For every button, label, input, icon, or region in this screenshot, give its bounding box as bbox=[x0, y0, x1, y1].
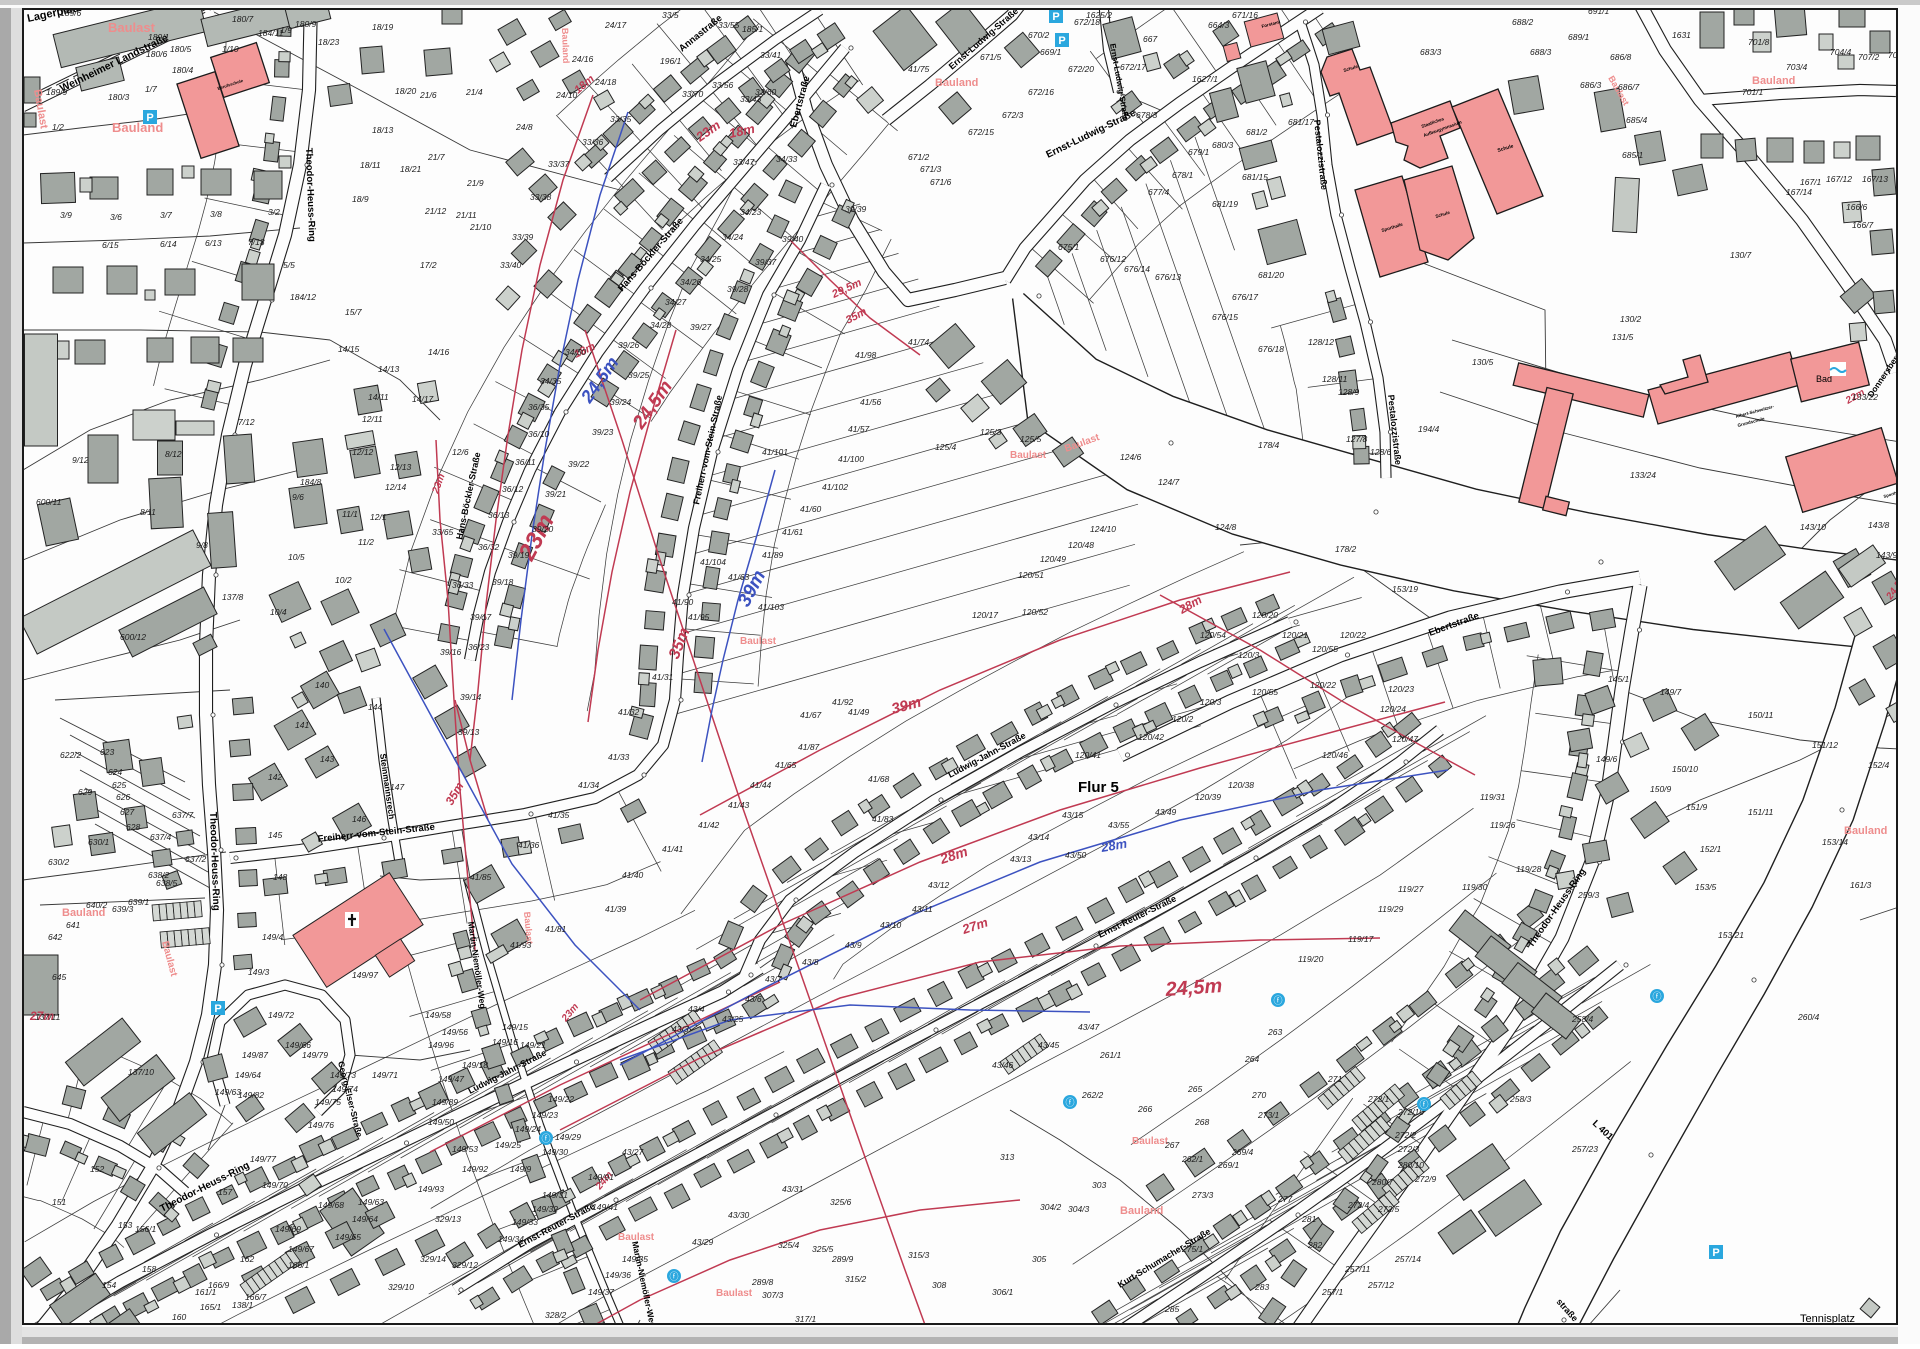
svg-text:41/102: 41/102 bbox=[822, 482, 848, 492]
svg-text:14/11: 14/11 bbox=[368, 392, 389, 402]
svg-text:149/50: 149/50 bbox=[428, 1117, 454, 1127]
svg-text:625: 625 bbox=[112, 780, 126, 790]
svg-text:637/7: 637/7 bbox=[172, 810, 194, 820]
svg-text:41/74: 41/74 bbox=[908, 337, 930, 347]
svg-text:41/44: 41/44 bbox=[750, 780, 772, 790]
svg-text:180/6: 180/6 bbox=[146, 49, 168, 59]
svg-text:119/30: 119/30 bbox=[1462, 882, 1488, 892]
svg-text:119/31: 119/31 bbox=[1480, 792, 1506, 802]
svg-text:153: 153 bbox=[118, 1220, 132, 1230]
svg-text:701/1: 701/1 bbox=[1742, 87, 1764, 97]
svg-text:120/46: 120/46 bbox=[1322, 750, 1348, 760]
svg-text:149/74: 149/74 bbox=[332, 1084, 358, 1094]
svg-text:Baulast: Baulast bbox=[1132, 1136, 1169, 1147]
svg-text:149/72: 149/72 bbox=[268, 1010, 294, 1020]
svg-text:41/68: 41/68 bbox=[868, 774, 890, 784]
svg-text:686/8: 686/8 bbox=[1610, 52, 1632, 62]
svg-text:672/3: 672/3 bbox=[1002, 110, 1024, 120]
svg-text:167/1: 167/1 bbox=[1800, 177, 1822, 187]
svg-text:683/3: 683/3 bbox=[1420, 47, 1442, 57]
svg-text:149/9: 149/9 bbox=[510, 1164, 532, 1174]
svg-text:41/85: 41/85 bbox=[470, 872, 492, 882]
svg-text:12/14: 12/14 bbox=[385, 482, 407, 492]
svg-text:149/29: 149/29 bbox=[555, 1132, 581, 1142]
svg-text:149/33: 149/33 bbox=[512, 1217, 538, 1227]
svg-text:257/14: 257/14 bbox=[1394, 1254, 1421, 1264]
svg-text:259/3: 259/3 bbox=[1577, 890, 1600, 900]
svg-text:151/9: 151/9 bbox=[1686, 802, 1708, 812]
svg-text:289/9: 289/9 bbox=[831, 1254, 854, 1264]
svg-text:33/43: 33/43 bbox=[740, 94, 762, 104]
svg-text:41/60: 41/60 bbox=[800, 504, 822, 514]
svg-text:34/28: 34/28 bbox=[650, 320, 672, 330]
svg-text:640/2: 640/2 bbox=[86, 900, 108, 910]
svg-text:39/13: 39/13 bbox=[458, 727, 480, 737]
svg-text:149/91: 149/91 bbox=[588, 1172, 614, 1182]
svg-text:1627/1: 1627/1 bbox=[1192, 74, 1218, 84]
svg-text:671/6: 671/6 bbox=[930, 177, 952, 187]
svg-text:149/37: 149/37 bbox=[588, 1287, 614, 1297]
svg-text:3/9: 3/9 bbox=[60, 210, 72, 220]
svg-text:33/41: 33/41 bbox=[760, 50, 782, 60]
svg-text:626: 626 bbox=[116, 792, 130, 802]
svg-text:41/31: 41/31 bbox=[652, 672, 674, 682]
svg-text:686/7: 686/7 bbox=[1618, 82, 1640, 92]
svg-text:149/89: 149/89 bbox=[432, 1097, 458, 1107]
svg-text:120/55: 120/55 bbox=[1252, 687, 1278, 697]
svg-text:282: 282 bbox=[1307, 1240, 1322, 1250]
svg-text:149/16: 149/16 bbox=[492, 1037, 518, 1047]
svg-text:120/55: 120/55 bbox=[1312, 644, 1338, 654]
svg-text:10/4: 10/4 bbox=[270, 607, 287, 617]
svg-text:41/95: 41/95 bbox=[688, 612, 710, 622]
svg-text:676/12: 676/12 bbox=[1100, 254, 1126, 264]
svg-text:33/47: 33/47 bbox=[733, 157, 755, 167]
svg-text:119/26: 119/26 bbox=[1490, 820, 1516, 830]
svg-text:680/3: 680/3 bbox=[1212, 140, 1234, 150]
svg-text:676/15: 676/15 bbox=[1212, 312, 1238, 322]
svg-text:260/4: 260/4 bbox=[1797, 1012, 1820, 1022]
svg-text:21/7: 21/7 bbox=[427, 152, 445, 162]
svg-text:149/58: 149/58 bbox=[425, 1010, 451, 1020]
svg-text:149/53: 149/53 bbox=[452, 1144, 478, 1154]
svg-text:166/7: 166/7 bbox=[245, 1292, 267, 1302]
svg-text:43/27: 43/27 bbox=[622, 1147, 644, 1157]
svg-text:158: 158 bbox=[142, 1264, 156, 1274]
svg-text:140: 140 bbox=[315, 680, 329, 690]
svg-text:149/6: 149/6 bbox=[1596, 754, 1618, 764]
svg-text:151/11: 151/11 bbox=[1748, 807, 1774, 817]
svg-text:41/87: 41/87 bbox=[798, 742, 820, 752]
svg-text:119/20: 119/20 bbox=[1298, 954, 1324, 964]
svg-text:143/10: 143/10 bbox=[1800, 522, 1826, 532]
svg-text:688/2: 688/2 bbox=[1512, 17, 1534, 27]
svg-text:257/11: 257/11 bbox=[1344, 1264, 1371, 1274]
svg-text:34/33: 34/33 bbox=[776, 154, 798, 164]
svg-text:670/2: 670/2 bbox=[1028, 30, 1050, 40]
svg-text:303: 303 bbox=[1092, 1180, 1106, 1190]
svg-text:669/1: 669/1 bbox=[1040, 47, 1062, 57]
svg-text:36/32: 36/32 bbox=[478, 542, 500, 552]
svg-text:43/25: 43/25 bbox=[722, 1014, 744, 1024]
svg-text:325/5: 325/5 bbox=[812, 1244, 834, 1254]
svg-text:24/16: 24/16 bbox=[571, 54, 594, 64]
svg-text:1/2: 1/2 bbox=[52, 122, 64, 132]
svg-text:130/2: 130/2 bbox=[1620, 314, 1642, 324]
svg-text:119/29: 119/29 bbox=[1378, 904, 1404, 914]
svg-text:1/7: 1/7 bbox=[145, 84, 157, 94]
svg-text:39/26: 39/26 bbox=[618, 340, 640, 350]
svg-text:120/49: 120/49 bbox=[1040, 554, 1066, 564]
svg-text:149/25: 149/25 bbox=[495, 1140, 521, 1150]
svg-text:671/2: 671/2 bbox=[908, 152, 930, 162]
svg-text:ⓕ: ⓕ bbox=[1419, 1100, 1428, 1110]
svg-text:120/47: 120/47 bbox=[1392, 734, 1418, 744]
svg-text:153/19: 153/19 bbox=[1392, 584, 1418, 594]
svg-text:43/50: 43/50 bbox=[1065, 850, 1087, 860]
svg-text:153/21: 153/21 bbox=[1718, 930, 1744, 940]
svg-text:189/9: 189/9 bbox=[46, 87, 68, 97]
svg-text:130/7: 130/7 bbox=[1730, 250, 1752, 260]
svg-text:269/1: 269/1 bbox=[1217, 1160, 1240, 1170]
svg-text:686/3: 686/3 bbox=[1580, 80, 1602, 90]
svg-text:41/33: 41/33 bbox=[608, 752, 630, 762]
svg-text:41/83: 41/83 bbox=[872, 814, 894, 824]
svg-text:36/33: 36/33 bbox=[452, 580, 474, 590]
svg-text:12/12: 12/12 bbox=[352, 447, 374, 457]
svg-text:676/14: 676/14 bbox=[1124, 264, 1150, 274]
svg-text:150/10: 150/10 bbox=[1672, 764, 1698, 774]
svg-text:41/41: 41/41 bbox=[662, 844, 684, 854]
svg-text:149/63: 149/63 bbox=[358, 1197, 384, 1207]
svg-text:265: 265 bbox=[1187, 1084, 1202, 1094]
svg-text:701/8: 701/8 bbox=[1748, 37, 1770, 47]
svg-text:258/3: 258/3 bbox=[1509, 1094, 1532, 1104]
svg-text:271: 271 bbox=[1327, 1074, 1342, 1084]
svg-text:43/49: 43/49 bbox=[1155, 807, 1177, 817]
svg-text:43/55: 43/55 bbox=[1108, 820, 1130, 830]
svg-text:166/7: 166/7 bbox=[1852, 220, 1874, 230]
svg-text:11/2: 11/2 bbox=[358, 537, 374, 547]
svg-text:41/49: 41/49 bbox=[848, 707, 870, 717]
svg-text:5/5: 5/5 bbox=[283, 260, 295, 270]
svg-text:43/31: 43/31 bbox=[782, 1184, 804, 1194]
svg-text:120/48: 120/48 bbox=[1068, 540, 1094, 550]
svg-text:14/17: 14/17 bbox=[412, 394, 434, 404]
svg-text:120/51: 120/51 bbox=[1018, 570, 1044, 580]
svg-text:39/22: 39/22 bbox=[568, 459, 590, 469]
svg-text:P: P bbox=[1052, 11, 1059, 23]
svg-text:11/1: 11/1 bbox=[342, 509, 358, 519]
svg-text:628: 628 bbox=[126, 822, 140, 832]
svg-text:149/77: 149/77 bbox=[250, 1154, 276, 1164]
svg-text:166/1: 166/1 bbox=[288, 1260, 310, 1270]
svg-text:1631: 1631 bbox=[1672, 30, 1691, 40]
svg-text:685/1: 685/1 bbox=[1622, 150, 1644, 160]
svg-text:149/67: 149/67 bbox=[288, 1244, 314, 1254]
svg-text:18/11: 18/11 bbox=[360, 160, 381, 170]
svg-text:ⓕ: ⓕ bbox=[541, 1134, 550, 1144]
svg-text:33/65: 33/65 bbox=[432, 527, 454, 537]
svg-text:149/93: 149/93 bbox=[418, 1184, 444, 1194]
svg-text:273/1: 273/1 bbox=[1257, 1110, 1280, 1120]
svg-text:149/18: 149/18 bbox=[462, 1060, 488, 1070]
svg-text:24/8: 24/8 bbox=[515, 122, 533, 132]
svg-text:285: 285 bbox=[1164, 1304, 1179, 1314]
svg-text:675/1: 675/1 bbox=[1058, 242, 1080, 252]
svg-text:157: 157 bbox=[218, 1187, 232, 1197]
svg-text:149/65: 149/65 bbox=[335, 1232, 361, 1242]
svg-text:149/73: 149/73 bbox=[330, 1070, 356, 1080]
svg-text:671/16: 671/16 bbox=[1232, 10, 1258, 20]
svg-text:707/2: 707/2 bbox=[1858, 52, 1880, 62]
svg-text:137/10: 137/10 bbox=[128, 1067, 154, 1077]
svg-text:41/67: 41/67 bbox=[800, 710, 822, 720]
svg-text:167/12: 167/12 bbox=[1826, 174, 1852, 184]
svg-text:120/17: 120/17 bbox=[972, 610, 998, 620]
svg-text:39/14: 39/14 bbox=[460, 692, 482, 702]
svg-text:ⓕ: ⓕ bbox=[669, 1272, 678, 1282]
svg-text:149/64: 149/64 bbox=[352, 1214, 378, 1224]
svg-text:41/40: 41/40 bbox=[622, 870, 644, 880]
svg-text:Bauland: Bauland bbox=[1120, 1205, 1163, 1217]
svg-text:624: 624 bbox=[108, 767, 122, 777]
svg-text:33/40: 33/40 bbox=[500, 260, 522, 270]
svg-text:637/2: 637/2 bbox=[185, 854, 207, 864]
svg-text:704/4: 704/4 bbox=[1830, 47, 1852, 57]
svg-text:180/4: 180/4 bbox=[172, 65, 194, 75]
svg-text:43/6: 43/6 bbox=[745, 994, 762, 1004]
svg-text:124/10: 124/10 bbox=[1090, 524, 1116, 534]
svg-text:36/13: 36/13 bbox=[488, 510, 510, 520]
svg-text:120/21: 120/21 bbox=[1282, 630, 1308, 640]
svg-text:153/5: 153/5 bbox=[1695, 882, 1717, 892]
svg-text:149/30: 149/30 bbox=[542, 1147, 568, 1157]
svg-text:600/12: 600/12 bbox=[120, 632, 146, 642]
svg-text:185/1: 185/1 bbox=[742, 24, 764, 34]
svg-text:34/35: 34/35 bbox=[540, 376, 562, 386]
svg-text:128/6: 128/6 bbox=[1370, 447, 1392, 457]
svg-text:41/104: 41/104 bbox=[700, 557, 726, 567]
svg-text:261/1: 261/1 bbox=[1099, 1050, 1122, 1060]
svg-text:317/1: 317/1 bbox=[795, 1314, 817, 1324]
svg-text:703/4: 703/4 bbox=[1786, 62, 1808, 72]
svg-text:151/12: 151/12 bbox=[1812, 740, 1838, 750]
svg-text:21/9: 21/9 bbox=[466, 178, 484, 188]
svg-text:39/17: 39/17 bbox=[470, 612, 492, 622]
svg-text:120/22: 120/22 bbox=[1310, 680, 1336, 690]
svg-text:6/15: 6/15 bbox=[102, 240, 119, 250]
svg-text:283: 283 bbox=[1254, 1282, 1269, 1292]
svg-text:41/103: 41/103 bbox=[758, 602, 784, 612]
svg-text:149/56: 149/56 bbox=[442, 1027, 468, 1037]
svg-text:ⓕ: ⓕ bbox=[1652, 992, 1661, 1002]
svg-text:21/12: 21/12 bbox=[424, 206, 447, 216]
svg-text:329/14: 329/14 bbox=[420, 1254, 446, 1264]
svg-text:6/14: 6/14 bbox=[160, 239, 177, 249]
svg-text:P: P bbox=[1712, 1247, 1719, 1259]
svg-text:128/12: 128/12 bbox=[1308, 337, 1334, 347]
svg-text:678/1: 678/1 bbox=[1172, 170, 1194, 180]
svg-text:325/4: 325/4 bbox=[778, 1240, 800, 1250]
svg-text:623: 623 bbox=[100, 747, 114, 757]
svg-text:180/9: 180/9 bbox=[295, 19, 317, 29]
svg-text:43/15: 43/15 bbox=[1062, 810, 1084, 820]
svg-text:263: 263 bbox=[1267, 1027, 1282, 1037]
svg-text:120/52: 120/52 bbox=[1022, 607, 1048, 617]
svg-text:17/2: 17/2 bbox=[420, 260, 437, 270]
svg-text:166/9: 166/9 bbox=[208, 1280, 230, 1290]
svg-text:41/98: 41/98 bbox=[855, 350, 877, 360]
svg-text:600/11: 600/11 bbox=[36, 497, 62, 507]
svg-text:41/92: 41/92 bbox=[832, 697, 854, 707]
svg-text:133/24: 133/24 bbox=[1630, 470, 1656, 480]
svg-text:36/10: 36/10 bbox=[528, 429, 550, 439]
svg-text:41/35: 41/35 bbox=[548, 810, 570, 820]
svg-text:149/15: 149/15 bbox=[502, 1022, 528, 1032]
svg-text:39/23: 39/23 bbox=[592, 427, 614, 437]
svg-text:149/47: 149/47 bbox=[438, 1074, 464, 1084]
svg-text:120/20: 120/20 bbox=[1252, 610, 1278, 620]
svg-text:689/1: 689/1 bbox=[1568, 32, 1590, 42]
svg-text:7/12: 7/12 bbox=[238, 417, 255, 427]
svg-text:137/8: 137/8 bbox=[222, 592, 244, 602]
svg-text:178/2: 178/2 bbox=[1335, 544, 1357, 554]
svg-text:672/15: 672/15 bbox=[968, 127, 994, 137]
svg-text:272/3: 272/3 bbox=[1397, 1144, 1420, 1154]
svg-text:120/38: 120/38 bbox=[1228, 780, 1254, 790]
svg-text:153/14: 153/14 bbox=[1822, 837, 1848, 847]
svg-text:667: 667 bbox=[1143, 34, 1157, 44]
svg-text:21/6: 21/6 bbox=[419, 90, 437, 100]
svg-text:8/12: 8/12 bbox=[165, 449, 182, 459]
svg-text:12/1: 12/1 bbox=[370, 512, 387, 522]
svg-text:149/68: 149/68 bbox=[318, 1200, 344, 1210]
svg-text:24,5m: 24,5m bbox=[1164, 975, 1223, 1001]
svg-text:128/11: 128/11 bbox=[1322, 374, 1348, 384]
svg-text:281: 281 bbox=[1301, 1214, 1316, 1224]
svg-text:273/3: 273/3 bbox=[1191, 1190, 1214, 1200]
svg-text:39/18: 39/18 bbox=[492, 577, 514, 587]
svg-text:10/2: 10/2 bbox=[335, 575, 352, 585]
svg-text:149/32: 149/32 bbox=[532, 1204, 558, 1214]
svg-text:289/8: 289/8 bbox=[751, 1277, 774, 1287]
svg-text:6/13: 6/13 bbox=[205, 238, 222, 248]
svg-text:180/5: 180/5 bbox=[170, 44, 192, 54]
svg-text:329/12: 329/12 bbox=[452, 1260, 478, 1270]
svg-text:9/8: 9/8 bbox=[196, 540, 208, 550]
svg-text:149/87: 149/87 bbox=[242, 1050, 268, 1060]
svg-text:637/4: 637/4 bbox=[150, 832, 172, 842]
svg-text:3/6: 3/6 bbox=[110, 212, 122, 222]
svg-text:124/8: 124/8 bbox=[1215, 522, 1237, 532]
svg-text:676/13: 676/13 bbox=[1155, 272, 1181, 282]
svg-text:151: 151 bbox=[52, 1197, 66, 1207]
svg-text:125/5: 125/5 bbox=[1020, 434, 1042, 444]
svg-text:672/20: 672/20 bbox=[1068, 64, 1094, 74]
svg-text:304/2: 304/2 bbox=[1040, 1202, 1062, 1212]
svg-text:149/31: 149/31 bbox=[542, 1190, 568, 1200]
svg-text:672/17: 672/17 bbox=[1120, 62, 1146, 72]
svg-text:124/7: 124/7 bbox=[1158, 477, 1180, 487]
svg-text:Baulast: Baulast bbox=[618, 1232, 655, 1243]
svg-text:149/23: 149/23 bbox=[532, 1110, 558, 1120]
svg-text:313: 313 bbox=[1000, 1152, 1014, 1162]
svg-text:41/75: 41/75 bbox=[908, 64, 930, 74]
svg-text:41/36: 41/36 bbox=[518, 840, 540, 850]
svg-text:Bauland: Bauland bbox=[1844, 825, 1887, 837]
svg-text:36/35: 36/35 bbox=[528, 402, 550, 412]
svg-text:33/35: 33/35 bbox=[610, 114, 632, 124]
svg-text:152/1: 152/1 bbox=[1700, 844, 1722, 854]
svg-text:664/3: 664/3 bbox=[1208, 20, 1230, 30]
svg-text:18/20: 18/20 bbox=[395, 86, 417, 96]
svg-text:262/2: 262/2 bbox=[1081, 1090, 1104, 1100]
svg-text:315/2: 315/2 bbox=[845, 1274, 867, 1284]
svg-text:672/16: 672/16 bbox=[1028, 87, 1054, 97]
svg-text:149/35: 149/35 bbox=[622, 1254, 648, 1264]
svg-text:149/70: 149/70 bbox=[262, 1180, 288, 1190]
svg-text:39/24: 39/24 bbox=[610, 397, 632, 407]
svg-text:268: 268 bbox=[1194, 1117, 1209, 1127]
svg-text:258/4: 258/4 bbox=[1571, 1014, 1594, 1024]
svg-text:12/6: 12/6 bbox=[452, 447, 469, 457]
svg-text:9/6: 9/6 bbox=[292, 492, 304, 502]
svg-text:P: P bbox=[1058, 35, 1065, 47]
svg-text:120/22: 120/22 bbox=[1340, 630, 1366, 640]
svg-text:194/4: 194/4 bbox=[1418, 424, 1440, 434]
svg-text:262/1: 262/1 bbox=[1181, 1154, 1204, 1164]
svg-text:41/43: 41/43 bbox=[728, 800, 750, 810]
svg-text:120/2: 120/2 bbox=[1172, 714, 1194, 724]
svg-text:12/11: 12/11 bbox=[362, 414, 383, 424]
svg-text:33/55: 33/55 bbox=[718, 20, 740, 30]
svg-text:141: 141 bbox=[295, 720, 309, 730]
svg-text:679/1: 679/1 bbox=[1188, 147, 1210, 157]
svg-text:41/65: 41/65 bbox=[775, 760, 797, 770]
svg-text:21/4: 21/4 bbox=[465, 87, 483, 97]
svg-text:167/14: 167/14 bbox=[1786, 187, 1812, 197]
svg-text:36/23: 36/23 bbox=[468, 642, 490, 652]
svg-text:125/3: 125/3 bbox=[980, 427, 1002, 437]
svg-text:149/34: 149/34 bbox=[498, 1234, 524, 1244]
svg-text:14/13: 14/13 bbox=[378, 364, 400, 374]
svg-text:33/56: 33/56 bbox=[712, 80, 734, 90]
svg-text:131/5: 131/5 bbox=[1612, 332, 1634, 342]
svg-text:43/9: 43/9 bbox=[845, 940, 862, 950]
svg-text:3/2: 3/2 bbox=[268, 207, 280, 217]
svg-text:41/101: 41/101 bbox=[762, 447, 788, 457]
svg-text:39/20: 39/20 bbox=[532, 524, 554, 534]
svg-text:149/22: 149/22 bbox=[548, 1094, 574, 1104]
svg-text:41/32: 41/32 bbox=[618, 707, 640, 717]
svg-text:10/5: 10/5 bbox=[288, 552, 305, 562]
svg-text:156/1: 156/1 bbox=[135, 1224, 157, 1234]
svg-text:120/54: 120/54 bbox=[1200, 630, 1226, 640]
svg-text:305: 305 bbox=[1032, 1254, 1046, 1264]
svg-text:18/13: 18/13 bbox=[372, 125, 394, 135]
svg-text:120/24: 120/24 bbox=[1380, 704, 1406, 714]
svg-text:33/39: 33/39 bbox=[512, 232, 534, 242]
svg-text:39/37: 39/37 bbox=[755, 257, 777, 267]
svg-text:43/10: 43/10 bbox=[880, 920, 902, 930]
svg-text:146: 146 bbox=[352, 814, 366, 824]
svg-text:257/12: 257/12 bbox=[1367, 1280, 1394, 1290]
svg-text:ⓕ: ⓕ bbox=[1065, 1098, 1074, 1108]
svg-text:41/89: 41/89 bbox=[762, 550, 784, 560]
svg-text:33/5: 33/5 bbox=[662, 10, 679, 20]
svg-text:629: 629 bbox=[78, 787, 92, 797]
